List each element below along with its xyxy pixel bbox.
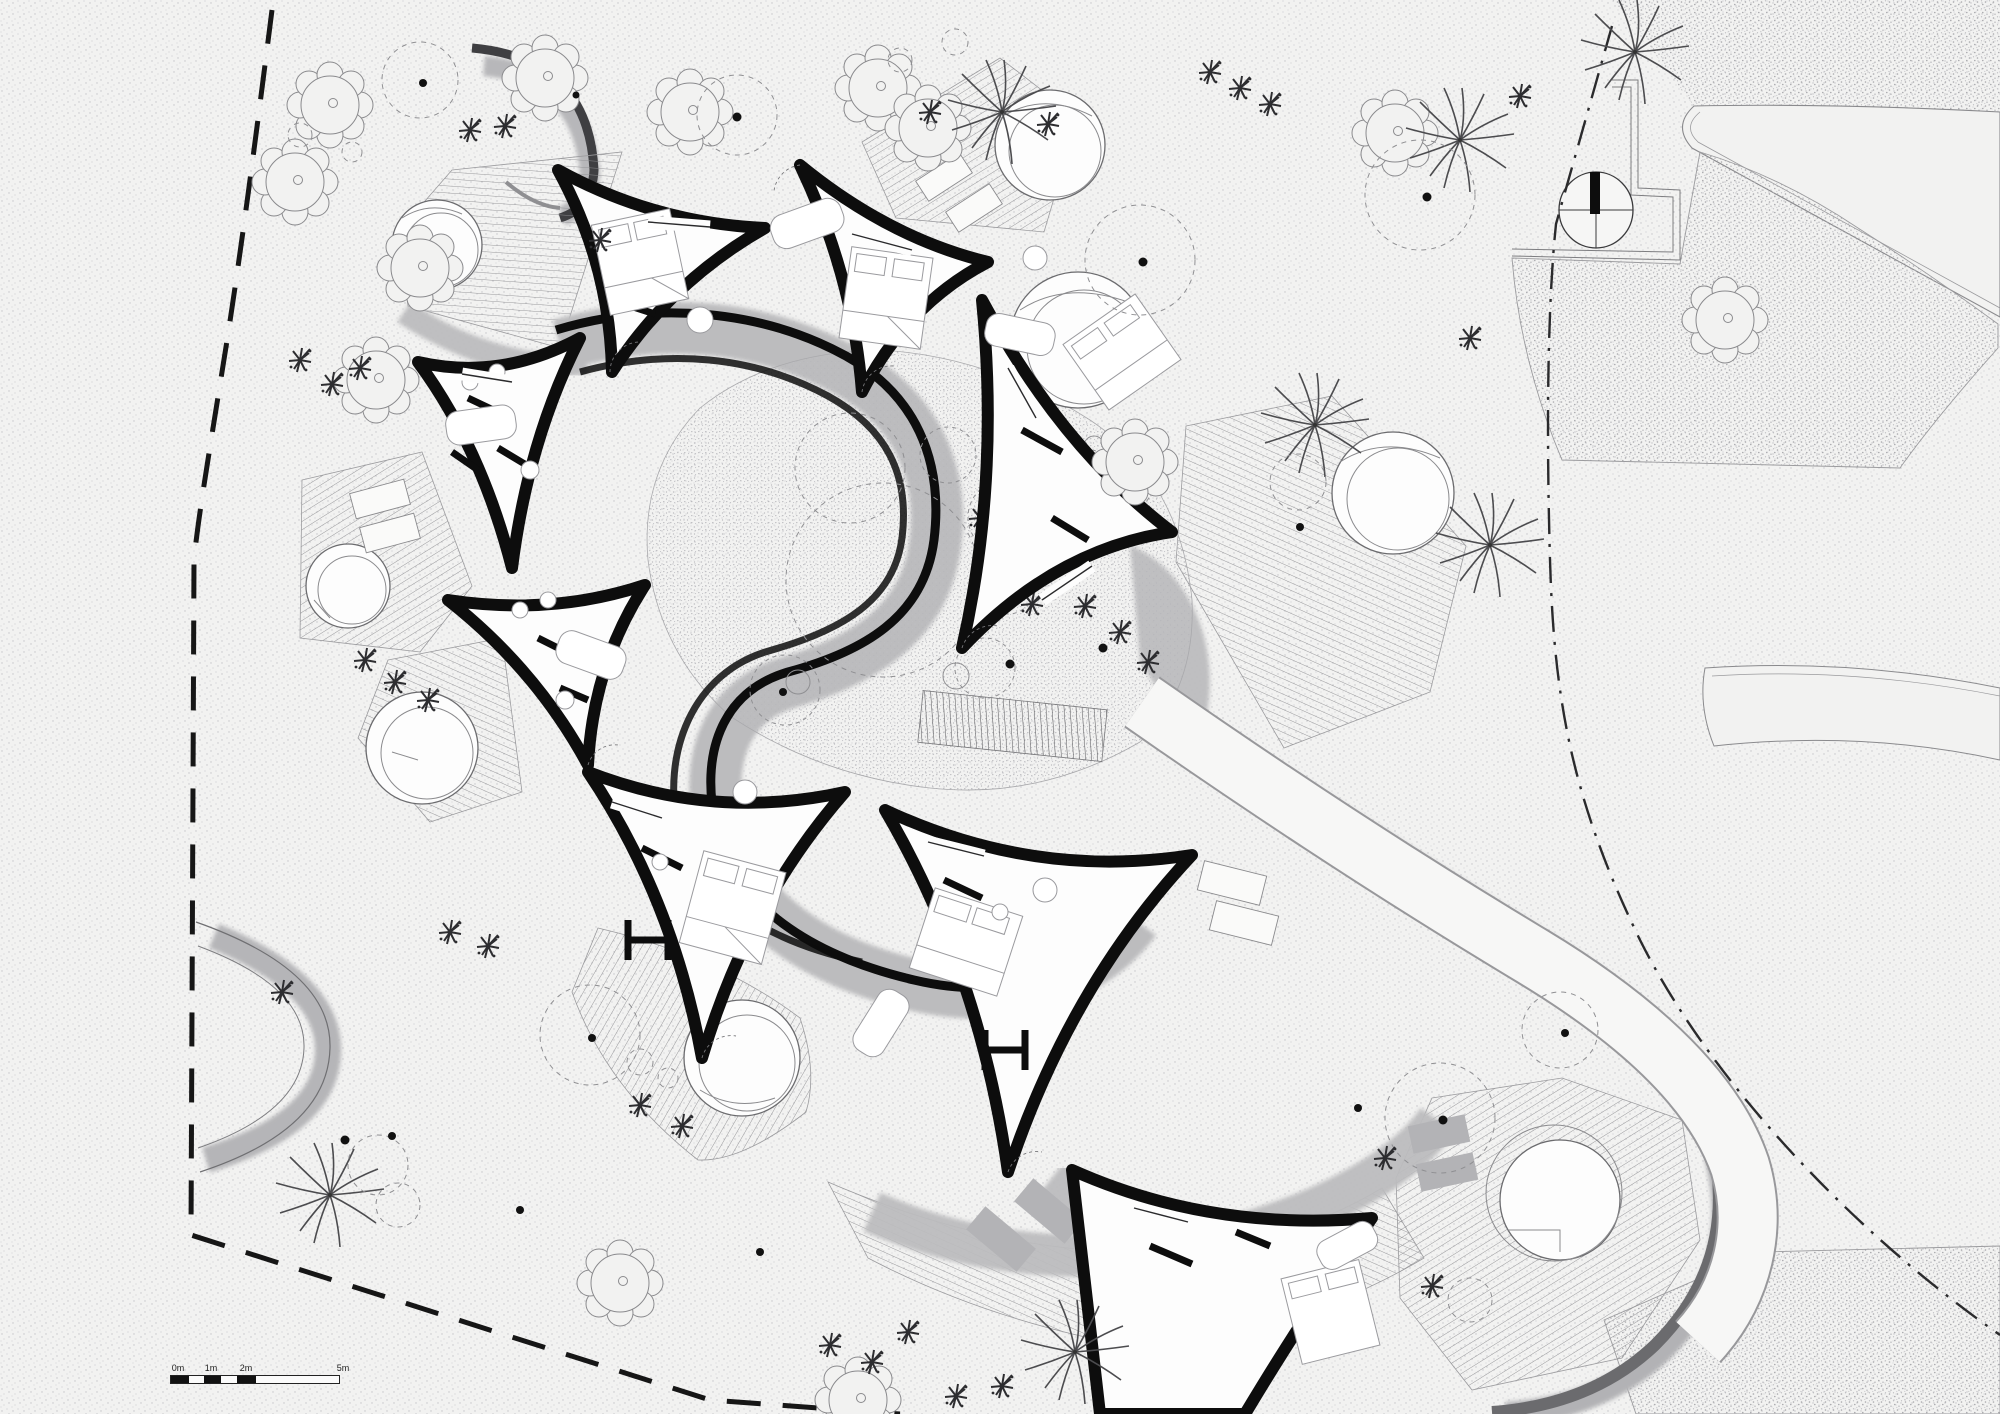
canopy-tree	[252, 139, 338, 225]
scale-bar-rule	[170, 1375, 340, 1384]
scale-label-2m: 2m	[240, 1363, 253, 1373]
scale-bar-segment	[204, 1376, 221, 1383]
scale-label-0m: 0m	[172, 1363, 185, 1373]
canopy-tree	[333, 337, 419, 423]
scale-bar-labels: 0m 1m 2m 5m	[170, 1363, 360, 1374]
bed	[839, 247, 933, 350]
scale-bar-segment	[171, 1376, 189, 1383]
canopy-tree	[287, 62, 373, 148]
canopy-tree	[1682, 277, 1768, 363]
canopy-tree	[577, 1240, 663, 1326]
well-symbol	[1559, 172, 1633, 248]
canopy-tree	[377, 225, 463, 311]
site-plan-sheet: 0m 1m 2m 5m	[0, 0, 2000, 1414]
scale-bar-segment	[237, 1376, 256, 1383]
scale-label-1m: 1m	[205, 1363, 218, 1373]
site-plan-drawing	[0, 0, 2000, 1414]
pool	[306, 544, 390, 628]
scale-bar: 0m 1m 2m 5m	[170, 1363, 360, 1389]
canopy-tree	[1092, 419, 1178, 505]
scale-label-5m: 5m	[337, 1363, 350, 1373]
canopy-tree	[647, 69, 733, 155]
pool	[1332, 432, 1454, 554]
canopy-tree	[502, 35, 588, 121]
